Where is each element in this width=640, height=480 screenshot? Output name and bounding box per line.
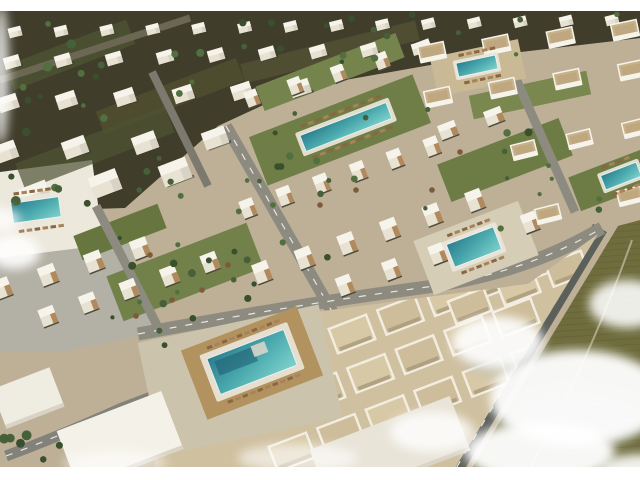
palm-tree bbox=[100, 114, 108, 122]
palm-tree bbox=[137, 300, 142, 305]
palm-tree bbox=[171, 50, 178, 57]
garden-umbrella bbox=[199, 287, 205, 293]
palm-tree bbox=[8, 174, 14, 180]
palm-tree bbox=[550, 177, 554, 181]
palm-tree bbox=[371, 55, 378, 62]
palm-tree bbox=[170, 260, 178, 268]
palm-tree bbox=[178, 193, 184, 199]
palm-tree bbox=[118, 236, 122, 240]
palm-tree bbox=[517, 17, 523, 23]
palm-tree bbox=[363, 115, 369, 121]
palm-tree bbox=[340, 52, 347, 59]
cloud bbox=[390, 412, 474, 452]
palm-tree bbox=[168, 179, 174, 185]
palm-tree bbox=[6, 434, 15, 443]
palm-tree bbox=[257, 179, 262, 184]
palm-tree bbox=[340, 59, 345, 64]
palm-tree bbox=[498, 225, 504, 231]
cloud bbox=[452, 316, 544, 368]
screenshot-root bbox=[0, 0, 640, 480]
garden-umbrella bbox=[133, 313, 139, 319]
palm-tree bbox=[537, 192, 541, 196]
palm-tree bbox=[231, 277, 237, 283]
palm-tree bbox=[175, 242, 180, 247]
palm-tree bbox=[425, 107, 430, 112]
palm-tree bbox=[525, 128, 533, 136]
palm-tree bbox=[456, 30, 461, 35]
palm-tree bbox=[20, 84, 27, 91]
palm-tree bbox=[162, 342, 168, 348]
palm-tree bbox=[546, 163, 551, 168]
palm-tree bbox=[159, 300, 167, 308]
palm-tree bbox=[84, 200, 91, 207]
palm-tree bbox=[514, 52, 518, 56]
letterbox-top bbox=[0, 0, 640, 11]
palm-tree bbox=[313, 157, 320, 164]
palm-tree bbox=[67, 39, 76, 48]
palm-tree bbox=[206, 257, 212, 263]
palm-tree bbox=[241, 44, 247, 50]
palm-tree bbox=[22, 128, 31, 137]
palm-tree bbox=[93, 74, 99, 80]
palm-tree bbox=[176, 90, 183, 97]
palm-tree bbox=[45, 21, 51, 27]
palm-tree bbox=[16, 439, 25, 448]
garden-umbrella bbox=[169, 297, 175, 303]
palm-tree bbox=[78, 70, 85, 77]
garden-umbrella bbox=[353, 187, 359, 193]
palm-tree bbox=[503, 129, 511, 137]
palm-tree bbox=[326, 178, 331, 183]
palm-tree bbox=[614, 12, 619, 17]
palm-tree bbox=[409, 11, 416, 18]
garden-umbrella bbox=[429, 187, 435, 193]
palm-tree bbox=[323, 23, 328, 28]
palm-tree bbox=[40, 456, 46, 462]
palm-tree bbox=[278, 163, 285, 170]
palm-tree bbox=[188, 269, 196, 277]
palm-tree bbox=[324, 254, 331, 261]
palm-tree bbox=[38, 94, 43, 99]
garden-umbrella bbox=[457, 149, 463, 155]
palm-tree bbox=[292, 111, 297, 116]
palm-tree bbox=[81, 103, 86, 108]
palm-tree bbox=[239, 19, 246, 26]
palm-tree bbox=[136, 187, 142, 193]
palm-tree bbox=[505, 176, 509, 180]
aerial-development-render bbox=[0, 0, 640, 480]
palm-tree bbox=[236, 208, 242, 214]
palm-tree bbox=[157, 156, 162, 161]
palm-tree bbox=[280, 239, 286, 245]
palm-tree bbox=[384, 33, 391, 40]
palm-tree bbox=[244, 295, 251, 302]
palm-tree bbox=[273, 130, 278, 135]
palm-tree bbox=[251, 281, 256, 286]
letterbox-bottom bbox=[0, 467, 640, 480]
palm-tree bbox=[156, 328, 162, 334]
palm-tree bbox=[277, 45, 284, 52]
palm-tree bbox=[43, 62, 53, 72]
palm-tree bbox=[596, 196, 602, 202]
palm-tree bbox=[189, 315, 196, 322]
palm-tree bbox=[423, 206, 427, 210]
palm-tree bbox=[351, 175, 358, 182]
palm-tree bbox=[286, 152, 293, 159]
palm-tree bbox=[189, 80, 194, 85]
palm-tree bbox=[245, 178, 250, 183]
palm-tree bbox=[270, 202, 276, 208]
palm-tree bbox=[22, 430, 32, 440]
palm-tree bbox=[268, 19, 275, 26]
palm-tree bbox=[371, 27, 377, 33]
palm-tree bbox=[231, 249, 237, 255]
palm-tree bbox=[317, 191, 324, 198]
palm-tree bbox=[110, 315, 114, 319]
palm-tree bbox=[196, 49, 204, 57]
palm-tree bbox=[98, 61, 105, 68]
palm-tree bbox=[11, 196, 21, 206]
garden-umbrella bbox=[147, 252, 153, 258]
palm-tree bbox=[502, 149, 508, 155]
palm-tree bbox=[56, 442, 63, 449]
palm-tree bbox=[55, 185, 63, 193]
palm-tree bbox=[128, 262, 136, 270]
garden-umbrella bbox=[317, 202, 323, 208]
palm-tree bbox=[348, 15, 354, 21]
palm-tree bbox=[143, 168, 150, 175]
palm-tree bbox=[175, 290, 180, 295]
garden-umbrella bbox=[225, 262, 231, 268]
palm-tree bbox=[244, 256, 251, 263]
palm-tree bbox=[25, 97, 32, 104]
palm-tree bbox=[596, 206, 603, 213]
